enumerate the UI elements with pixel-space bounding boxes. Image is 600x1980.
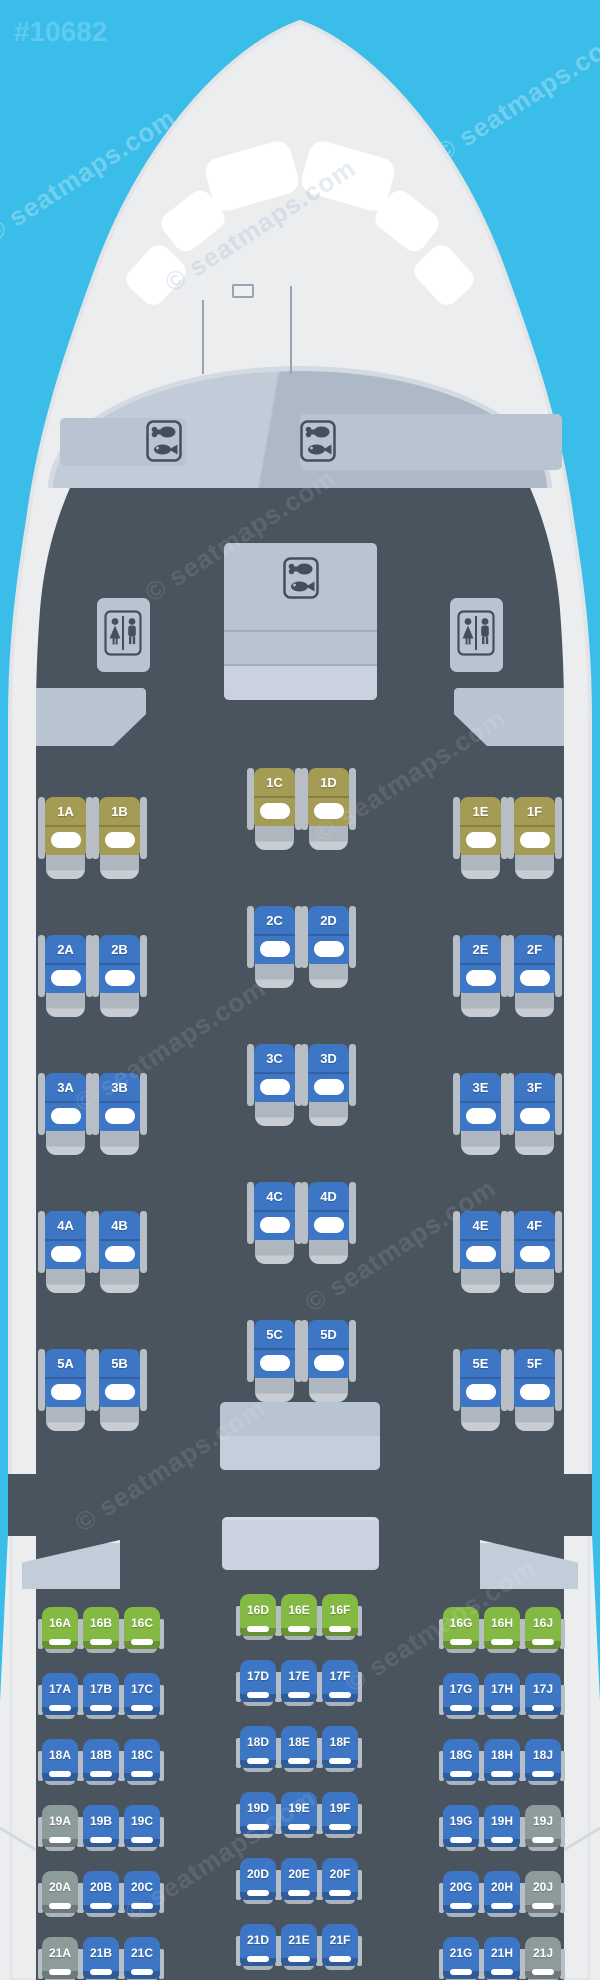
seat-cushion bbox=[90, 1903, 112, 1909]
seat-back: 17B bbox=[83, 1673, 119, 1715]
seat-19J[interactable]: 19J bbox=[521, 1805, 565, 1851]
seat-back: 2F bbox=[514, 935, 555, 993]
seat-back: 20E bbox=[281, 1858, 317, 1900]
seat-label: 17C bbox=[124, 1682, 160, 1696]
seat-cushion bbox=[450, 1837, 472, 1843]
seat-2B[interactable]: 2B bbox=[92, 935, 147, 1017]
seat-21F[interactable]: 21F bbox=[318, 1924, 362, 1970]
seat-cushion bbox=[288, 1956, 310, 1962]
seat-base bbox=[461, 853, 500, 879]
seat-label: 1F bbox=[514, 804, 555, 819]
seat-label: 21E bbox=[281, 1933, 317, 1947]
seat-16H[interactable]: 16H bbox=[480, 1607, 524, 1653]
seat-label: 21C bbox=[124, 1946, 160, 1960]
seat-cushion bbox=[520, 1384, 550, 1400]
seat-base bbox=[100, 1129, 139, 1155]
seat-4B[interactable]: 4B bbox=[92, 1211, 147, 1293]
seat-base bbox=[309, 1376, 348, 1402]
seat-label: 1E bbox=[460, 804, 501, 819]
seat-cushion bbox=[51, 970, 81, 986]
seat-17A[interactable]: 17A bbox=[38, 1673, 82, 1719]
seat-cushion bbox=[51, 832, 81, 848]
seat-back: 19D bbox=[240, 1792, 276, 1834]
seat-5D[interactable]: 5D bbox=[301, 1320, 356, 1402]
forward-right-galley bbox=[300, 414, 562, 470]
armrest bbox=[453, 797, 460, 859]
seat-19F[interactable]: 19F bbox=[318, 1792, 362, 1838]
seat-label: 16H bbox=[484, 1616, 520, 1630]
seat-20D[interactable]: 20D bbox=[236, 1858, 280, 1904]
seat-16A[interactable]: 16A bbox=[38, 1607, 82, 1653]
cockpit-door-line bbox=[202, 300, 204, 374]
seat-base bbox=[515, 991, 554, 1017]
seat-cushion bbox=[51, 1246, 81, 1262]
seat-cushion bbox=[90, 1639, 112, 1645]
seat-17E[interactable]: 17E bbox=[277, 1660, 321, 1706]
seat-label: 19A bbox=[42, 1814, 78, 1828]
seat-cushion bbox=[105, 1246, 135, 1262]
galley-icon bbox=[300, 420, 336, 462]
seat-label: 3A bbox=[45, 1080, 86, 1095]
seat-4D[interactable]: 4D bbox=[301, 1182, 356, 1264]
seat-label: 21A bbox=[42, 1946, 78, 1960]
seat-label: 17A bbox=[42, 1682, 78, 1696]
seat-cushion bbox=[131, 1705, 153, 1711]
seat-1B[interactable]: 1B bbox=[92, 797, 147, 879]
seat-3A[interactable]: 3A bbox=[38, 1073, 93, 1155]
seat-base bbox=[309, 824, 348, 850]
seat-label: 4F bbox=[514, 1218, 555, 1233]
seat-20E[interactable]: 20E bbox=[277, 1858, 321, 1904]
seat-label: 16G bbox=[443, 1616, 479, 1630]
seat-label: 21G bbox=[443, 1946, 479, 1960]
seat-back: 3A bbox=[45, 1073, 86, 1131]
seat-18D[interactable]: 18D bbox=[236, 1726, 280, 1772]
armrest bbox=[349, 1182, 356, 1244]
seat-16J[interactable]: 16J bbox=[521, 1607, 565, 1653]
seat-back: 19B bbox=[83, 1805, 119, 1847]
seat-cushion bbox=[491, 1903, 513, 1909]
seat-back: 3E bbox=[460, 1073, 501, 1131]
seat-17D[interactable]: 17D bbox=[236, 1660, 280, 1706]
armrest bbox=[247, 1320, 254, 1382]
seat-19G[interactable]: 19G bbox=[439, 1805, 483, 1851]
seat-back: 17A bbox=[42, 1673, 78, 1715]
seat-base bbox=[46, 1405, 85, 1431]
seat-back: 18H bbox=[484, 1739, 520, 1781]
seat-21D[interactable]: 21D bbox=[236, 1924, 280, 1970]
seat-3C[interactable]: 3C bbox=[247, 1044, 302, 1126]
seat-2F[interactable]: 2F bbox=[507, 935, 562, 1017]
seat-17C[interactable]: 17C bbox=[120, 1673, 164, 1719]
seat-2C[interactable]: 2C bbox=[247, 906, 302, 988]
seat-back: 19G bbox=[443, 1805, 479, 1847]
seat-4F[interactable]: 4F bbox=[507, 1211, 562, 1293]
seat-label: 18F bbox=[322, 1735, 358, 1749]
seat-label: 20B bbox=[83, 1880, 119, 1894]
seat-label: 4B bbox=[99, 1218, 140, 1233]
seat-21G[interactable]: 21G bbox=[439, 1937, 483, 1980]
armrest bbox=[453, 1349, 460, 1411]
seat-cushion bbox=[105, 1384, 135, 1400]
seat-back: 18F bbox=[322, 1726, 358, 1768]
seat-16D[interactable]: 16D bbox=[236, 1594, 280, 1640]
seat-19B[interactable]: 19B bbox=[79, 1805, 123, 1851]
seat-cushion bbox=[260, 1355, 290, 1371]
seat-label: 4A bbox=[45, 1218, 86, 1233]
armrest bbox=[38, 1211, 45, 1273]
seat-cushion bbox=[247, 1692, 269, 1698]
seat-back: 19H bbox=[484, 1805, 520, 1847]
seat-base bbox=[515, 1129, 554, 1155]
seat-back: 16E bbox=[281, 1594, 317, 1636]
seat-label: 5A bbox=[45, 1356, 86, 1371]
seat-back: 18D bbox=[240, 1726, 276, 1768]
seat-label: 16A bbox=[42, 1616, 78, 1630]
seat-base bbox=[100, 991, 139, 1017]
cockpit-door-handle bbox=[232, 284, 254, 298]
seat-19H[interactable]: 19H bbox=[480, 1805, 524, 1851]
seat-map-canvas: © seatmaps.com © seatmaps.com bbox=[0, 0, 600, 1980]
seat-cushion bbox=[260, 803, 290, 819]
seat-cushion bbox=[288, 1692, 310, 1698]
seat-label: 4D bbox=[308, 1189, 349, 1204]
armrest bbox=[247, 1044, 254, 1106]
seat-18C[interactable]: 18C bbox=[120, 1739, 164, 1785]
armrest bbox=[247, 1182, 254, 1244]
seat-cushion bbox=[131, 1837, 153, 1843]
seat-cushion bbox=[105, 1108, 135, 1124]
seat-back: 20G bbox=[443, 1871, 479, 1913]
seat-back: 3F bbox=[514, 1073, 555, 1131]
right-wing bbox=[590, 1492, 600, 1980]
seat-cushion bbox=[491, 1969, 513, 1975]
seat-5F[interactable]: 5F bbox=[507, 1349, 562, 1431]
seat-18G[interactable]: 18G bbox=[439, 1739, 483, 1785]
seat-cushion bbox=[260, 1217, 290, 1233]
seat-back: 19E bbox=[281, 1792, 317, 1834]
armrest bbox=[507, 797, 514, 859]
seat-base bbox=[461, 1267, 500, 1293]
seat-label: 19D bbox=[240, 1801, 276, 1815]
seat-label: 3B bbox=[99, 1080, 140, 1095]
seat-label: 5F bbox=[514, 1356, 555, 1371]
seat-18H[interactable]: 18H bbox=[480, 1739, 524, 1785]
seat-cushion bbox=[466, 1384, 496, 1400]
seat-label: 5B bbox=[99, 1356, 140, 1371]
seat-back: 18A bbox=[42, 1739, 78, 1781]
seat-19D[interactable]: 19D bbox=[236, 1792, 280, 1838]
seat-back: 17H bbox=[484, 1673, 520, 1715]
seat-back: 5B bbox=[99, 1349, 140, 1407]
seat-back: 20A bbox=[42, 1871, 78, 1913]
armrest bbox=[92, 1073, 99, 1135]
seat-20H[interactable]: 20H bbox=[480, 1871, 524, 1917]
seat-back: 17F bbox=[322, 1660, 358, 1702]
seat-label: 17E bbox=[281, 1669, 317, 1683]
seat-label: 1C bbox=[254, 775, 295, 790]
armrest bbox=[301, 906, 308, 968]
armrest bbox=[247, 906, 254, 968]
seat-cushion bbox=[450, 1639, 472, 1645]
seat-18E[interactable]: 18E bbox=[277, 1726, 321, 1772]
seat-1E[interactable]: 1E bbox=[453, 797, 508, 879]
seat-base bbox=[100, 853, 139, 879]
seat-cushion bbox=[288, 1824, 310, 1830]
seat-5A[interactable]: 5A bbox=[38, 1349, 93, 1431]
armrest bbox=[507, 1349, 514, 1411]
seat-back: 2E bbox=[460, 935, 501, 993]
galley-icon bbox=[146, 420, 182, 462]
seat-base bbox=[515, 1405, 554, 1431]
seat-label: 17F bbox=[322, 1669, 358, 1683]
seat-back: 20J bbox=[525, 1871, 561, 1913]
seat-cushion bbox=[314, 941, 344, 957]
seat-back: 1A bbox=[45, 797, 86, 855]
seat-21E[interactable]: 21E bbox=[277, 1924, 321, 1970]
seat-back: 16B bbox=[83, 1607, 119, 1649]
seat-label: 19G bbox=[443, 1814, 479, 1828]
seat-back: 2A bbox=[45, 935, 86, 993]
seat-base bbox=[255, 1100, 294, 1126]
seat-back: 20C bbox=[124, 1871, 160, 1913]
seat-cushion bbox=[329, 1626, 351, 1632]
seat-back: 2B bbox=[99, 935, 140, 993]
seat-17H[interactable]: 17H bbox=[480, 1673, 524, 1719]
seat-back: 5A bbox=[45, 1349, 86, 1407]
galley-icon bbox=[283, 557, 319, 599]
seat-cushion bbox=[49, 1969, 71, 1975]
seat-back: 21F bbox=[322, 1924, 358, 1966]
seat-label: 5C bbox=[254, 1327, 295, 1342]
armrest bbox=[555, 797, 562, 859]
seat-cushion bbox=[329, 1890, 351, 1896]
left-wing bbox=[0, 1492, 10, 1980]
seat-20G[interactable]: 20G bbox=[439, 1871, 483, 1917]
seat-cushion bbox=[288, 1758, 310, 1764]
seat-17B[interactable]: 17B bbox=[79, 1673, 123, 1719]
seat-back: 17D bbox=[240, 1660, 276, 1702]
seat-1F[interactable]: 1F bbox=[507, 797, 562, 879]
armrest bbox=[92, 1211, 99, 1273]
armrest bbox=[555, 1349, 562, 1411]
seat-1A[interactable]: 1A bbox=[38, 797, 93, 879]
seat-18F[interactable]: 18F bbox=[318, 1726, 362, 1772]
seat-base bbox=[515, 853, 554, 879]
armrest bbox=[453, 1073, 460, 1135]
seat-label: 19C bbox=[124, 1814, 160, 1828]
seat-19C[interactable]: 19C bbox=[120, 1805, 164, 1851]
seat-label: 20A bbox=[42, 1880, 78, 1894]
right-exit-door-cutout bbox=[564, 1474, 592, 1536]
seat-2D[interactable]: 2D bbox=[301, 906, 356, 988]
armrest bbox=[38, 1349, 45, 1411]
seat-back: 4B bbox=[99, 1211, 140, 1269]
seat-5C[interactable]: 5C bbox=[247, 1320, 302, 1402]
seat-21B[interactable]: 21B bbox=[79, 1937, 123, 1980]
seat-21C[interactable]: 21C bbox=[120, 1937, 164, 1980]
seat-label: 2F bbox=[514, 942, 555, 957]
seat-3B[interactable]: 3B bbox=[92, 1073, 147, 1155]
seat-back: 16D bbox=[240, 1594, 276, 1636]
seat-cushion bbox=[131, 1969, 153, 1975]
armrest bbox=[349, 906, 356, 968]
seat-base bbox=[46, 1267, 85, 1293]
seat-base bbox=[100, 1405, 139, 1431]
seat-label: 16E bbox=[281, 1603, 317, 1617]
seat-17G[interactable]: 17G bbox=[439, 1673, 483, 1719]
seat-cushion bbox=[520, 970, 550, 986]
armrest bbox=[453, 935, 460, 997]
seat-4E[interactable]: 4E bbox=[453, 1211, 508, 1293]
seat-cushion bbox=[90, 1969, 112, 1975]
seat-label: 18J bbox=[525, 1748, 561, 1762]
seat-5E[interactable]: 5E bbox=[453, 1349, 508, 1431]
seat-cushion bbox=[520, 1108, 550, 1124]
seat-20J[interactable]: 20J bbox=[521, 1871, 565, 1917]
seat-back: 5F bbox=[514, 1349, 555, 1407]
seat-16E[interactable]: 16E bbox=[277, 1594, 321, 1640]
seat-back: 17E bbox=[281, 1660, 317, 1702]
seat-16B[interactable]: 16B bbox=[79, 1607, 123, 1653]
seat-cushion bbox=[532, 1639, 554, 1645]
seat-cushion bbox=[520, 1246, 550, 1262]
seat-back: 21G bbox=[443, 1937, 479, 1979]
seat-label: 2C bbox=[254, 913, 295, 928]
seat-cushion bbox=[532, 1771, 554, 1777]
seat-cushion bbox=[49, 1639, 71, 1645]
seat-back: 2D bbox=[308, 906, 349, 964]
seat-base bbox=[461, 1129, 500, 1155]
seat-label: 20E bbox=[281, 1867, 317, 1881]
seat-back: 1B bbox=[99, 797, 140, 855]
seat-21H[interactable]: 21H bbox=[480, 1937, 524, 1980]
seat-label: 20F bbox=[322, 1867, 358, 1881]
seat-label: 19B bbox=[83, 1814, 119, 1828]
seat-back: 2C bbox=[254, 906, 295, 964]
seat-back: 18B bbox=[83, 1739, 119, 1781]
seat-map-id: #10682 bbox=[14, 16, 107, 48]
seat-back: 21E bbox=[281, 1924, 317, 1966]
seat-4A[interactable]: 4A bbox=[38, 1211, 93, 1293]
seat-16G[interactable]: 16G bbox=[439, 1607, 483, 1653]
seat-cushion bbox=[247, 1890, 269, 1896]
seat-back: 1F bbox=[514, 797, 555, 855]
seat-back: 18G bbox=[443, 1739, 479, 1781]
seat-3D[interactable]: 3D bbox=[301, 1044, 356, 1126]
seat-label: 19H bbox=[484, 1814, 520, 1828]
seat-20B[interactable]: 20B bbox=[79, 1871, 123, 1917]
armrest bbox=[92, 1349, 99, 1411]
seat-3F[interactable]: 3F bbox=[507, 1073, 562, 1155]
seat-cushion bbox=[532, 1969, 554, 1975]
seat-label: 3C bbox=[254, 1051, 295, 1066]
seat-cushion bbox=[532, 1705, 554, 1711]
seat-20A[interactable]: 20A bbox=[38, 1871, 82, 1917]
seat-cushion bbox=[90, 1705, 112, 1711]
seat-back: 16H bbox=[484, 1607, 520, 1649]
seat-21J[interactable]: 21J bbox=[521, 1937, 565, 1980]
seat-back: 5D bbox=[308, 1320, 349, 1378]
mid-galley bbox=[220, 1402, 380, 1470]
armrest bbox=[453, 1211, 460, 1273]
seat-label: 18H bbox=[484, 1748, 520, 1762]
seat-label: 18A bbox=[42, 1748, 78, 1762]
seat-1D[interactable]: 1D bbox=[301, 768, 356, 850]
seat-19A[interactable]: 19A bbox=[38, 1805, 82, 1851]
armrest bbox=[301, 768, 308, 830]
lavatory-icon bbox=[457, 610, 495, 656]
seat-label: 16D bbox=[240, 1603, 276, 1617]
seat-5B[interactable]: 5B bbox=[92, 1349, 147, 1431]
seat-label: 4E bbox=[460, 1218, 501, 1233]
seat-18B[interactable]: 18B bbox=[79, 1739, 123, 1785]
seat-base bbox=[100, 1267, 139, 1293]
seat-16C[interactable]: 16C bbox=[120, 1607, 164, 1653]
seat-cushion bbox=[260, 941, 290, 957]
seat-label: 17B bbox=[83, 1682, 119, 1696]
armrest bbox=[507, 935, 514, 997]
seat-label: 19E bbox=[281, 1801, 317, 1815]
seat-1C[interactable]: 1C bbox=[247, 768, 302, 850]
seat-base bbox=[461, 991, 500, 1017]
seat-20F[interactable]: 20F bbox=[318, 1858, 362, 1904]
seat-base bbox=[255, 1238, 294, 1264]
seat-3E[interactable]: 3E bbox=[453, 1073, 508, 1155]
armrest bbox=[349, 1320, 356, 1382]
seat-base bbox=[46, 991, 85, 1017]
mid-stowage bbox=[222, 1517, 379, 1570]
seat-base bbox=[255, 1376, 294, 1402]
seat-label: 1B bbox=[99, 804, 140, 819]
seat-back: 16F bbox=[322, 1594, 358, 1636]
seat-17F[interactable]: 17F bbox=[318, 1660, 362, 1706]
seat-label: 5D bbox=[308, 1327, 349, 1342]
seat-21A[interactable]: 21A bbox=[38, 1937, 82, 1980]
armrest bbox=[92, 935, 99, 997]
seat-16F[interactable]: 16F bbox=[318, 1594, 362, 1640]
armrest bbox=[301, 1182, 308, 1244]
seat-back: 3B bbox=[99, 1073, 140, 1131]
seat-label: 4C bbox=[254, 1189, 295, 1204]
seat-cushion bbox=[466, 1246, 496, 1262]
seat-cushion bbox=[450, 1903, 472, 1909]
seat-cushion bbox=[450, 1771, 472, 1777]
seat-18J[interactable]: 18J bbox=[521, 1739, 565, 1785]
seat-cushion bbox=[90, 1837, 112, 1843]
seat-base bbox=[309, 1238, 348, 1264]
seat-back: 20F bbox=[322, 1858, 358, 1900]
seat-20C[interactable]: 20C bbox=[120, 1871, 164, 1917]
seat-back: 4F bbox=[514, 1211, 555, 1269]
seat-4C[interactable]: 4C bbox=[247, 1182, 302, 1264]
seat-17J[interactable]: 17J bbox=[521, 1673, 565, 1719]
seat-label: 16B bbox=[83, 1616, 119, 1630]
seat-label: 3E bbox=[460, 1080, 501, 1095]
seat-cushion bbox=[466, 970, 496, 986]
seat-label: 2E bbox=[460, 942, 501, 957]
seat-2E[interactable]: 2E bbox=[453, 935, 508, 1017]
lavatory-icon bbox=[104, 610, 142, 656]
seat-back: 21H bbox=[484, 1937, 520, 1979]
seat-label: 17J bbox=[525, 1682, 561, 1696]
seat-18A[interactable]: 18A bbox=[38, 1739, 82, 1785]
armrest bbox=[38, 797, 45, 859]
seat-19E[interactable]: 19E bbox=[277, 1792, 321, 1838]
seat-2A[interactable]: 2A bbox=[38, 935, 93, 1017]
armrest bbox=[507, 1073, 514, 1135]
seat-cushion bbox=[450, 1705, 472, 1711]
